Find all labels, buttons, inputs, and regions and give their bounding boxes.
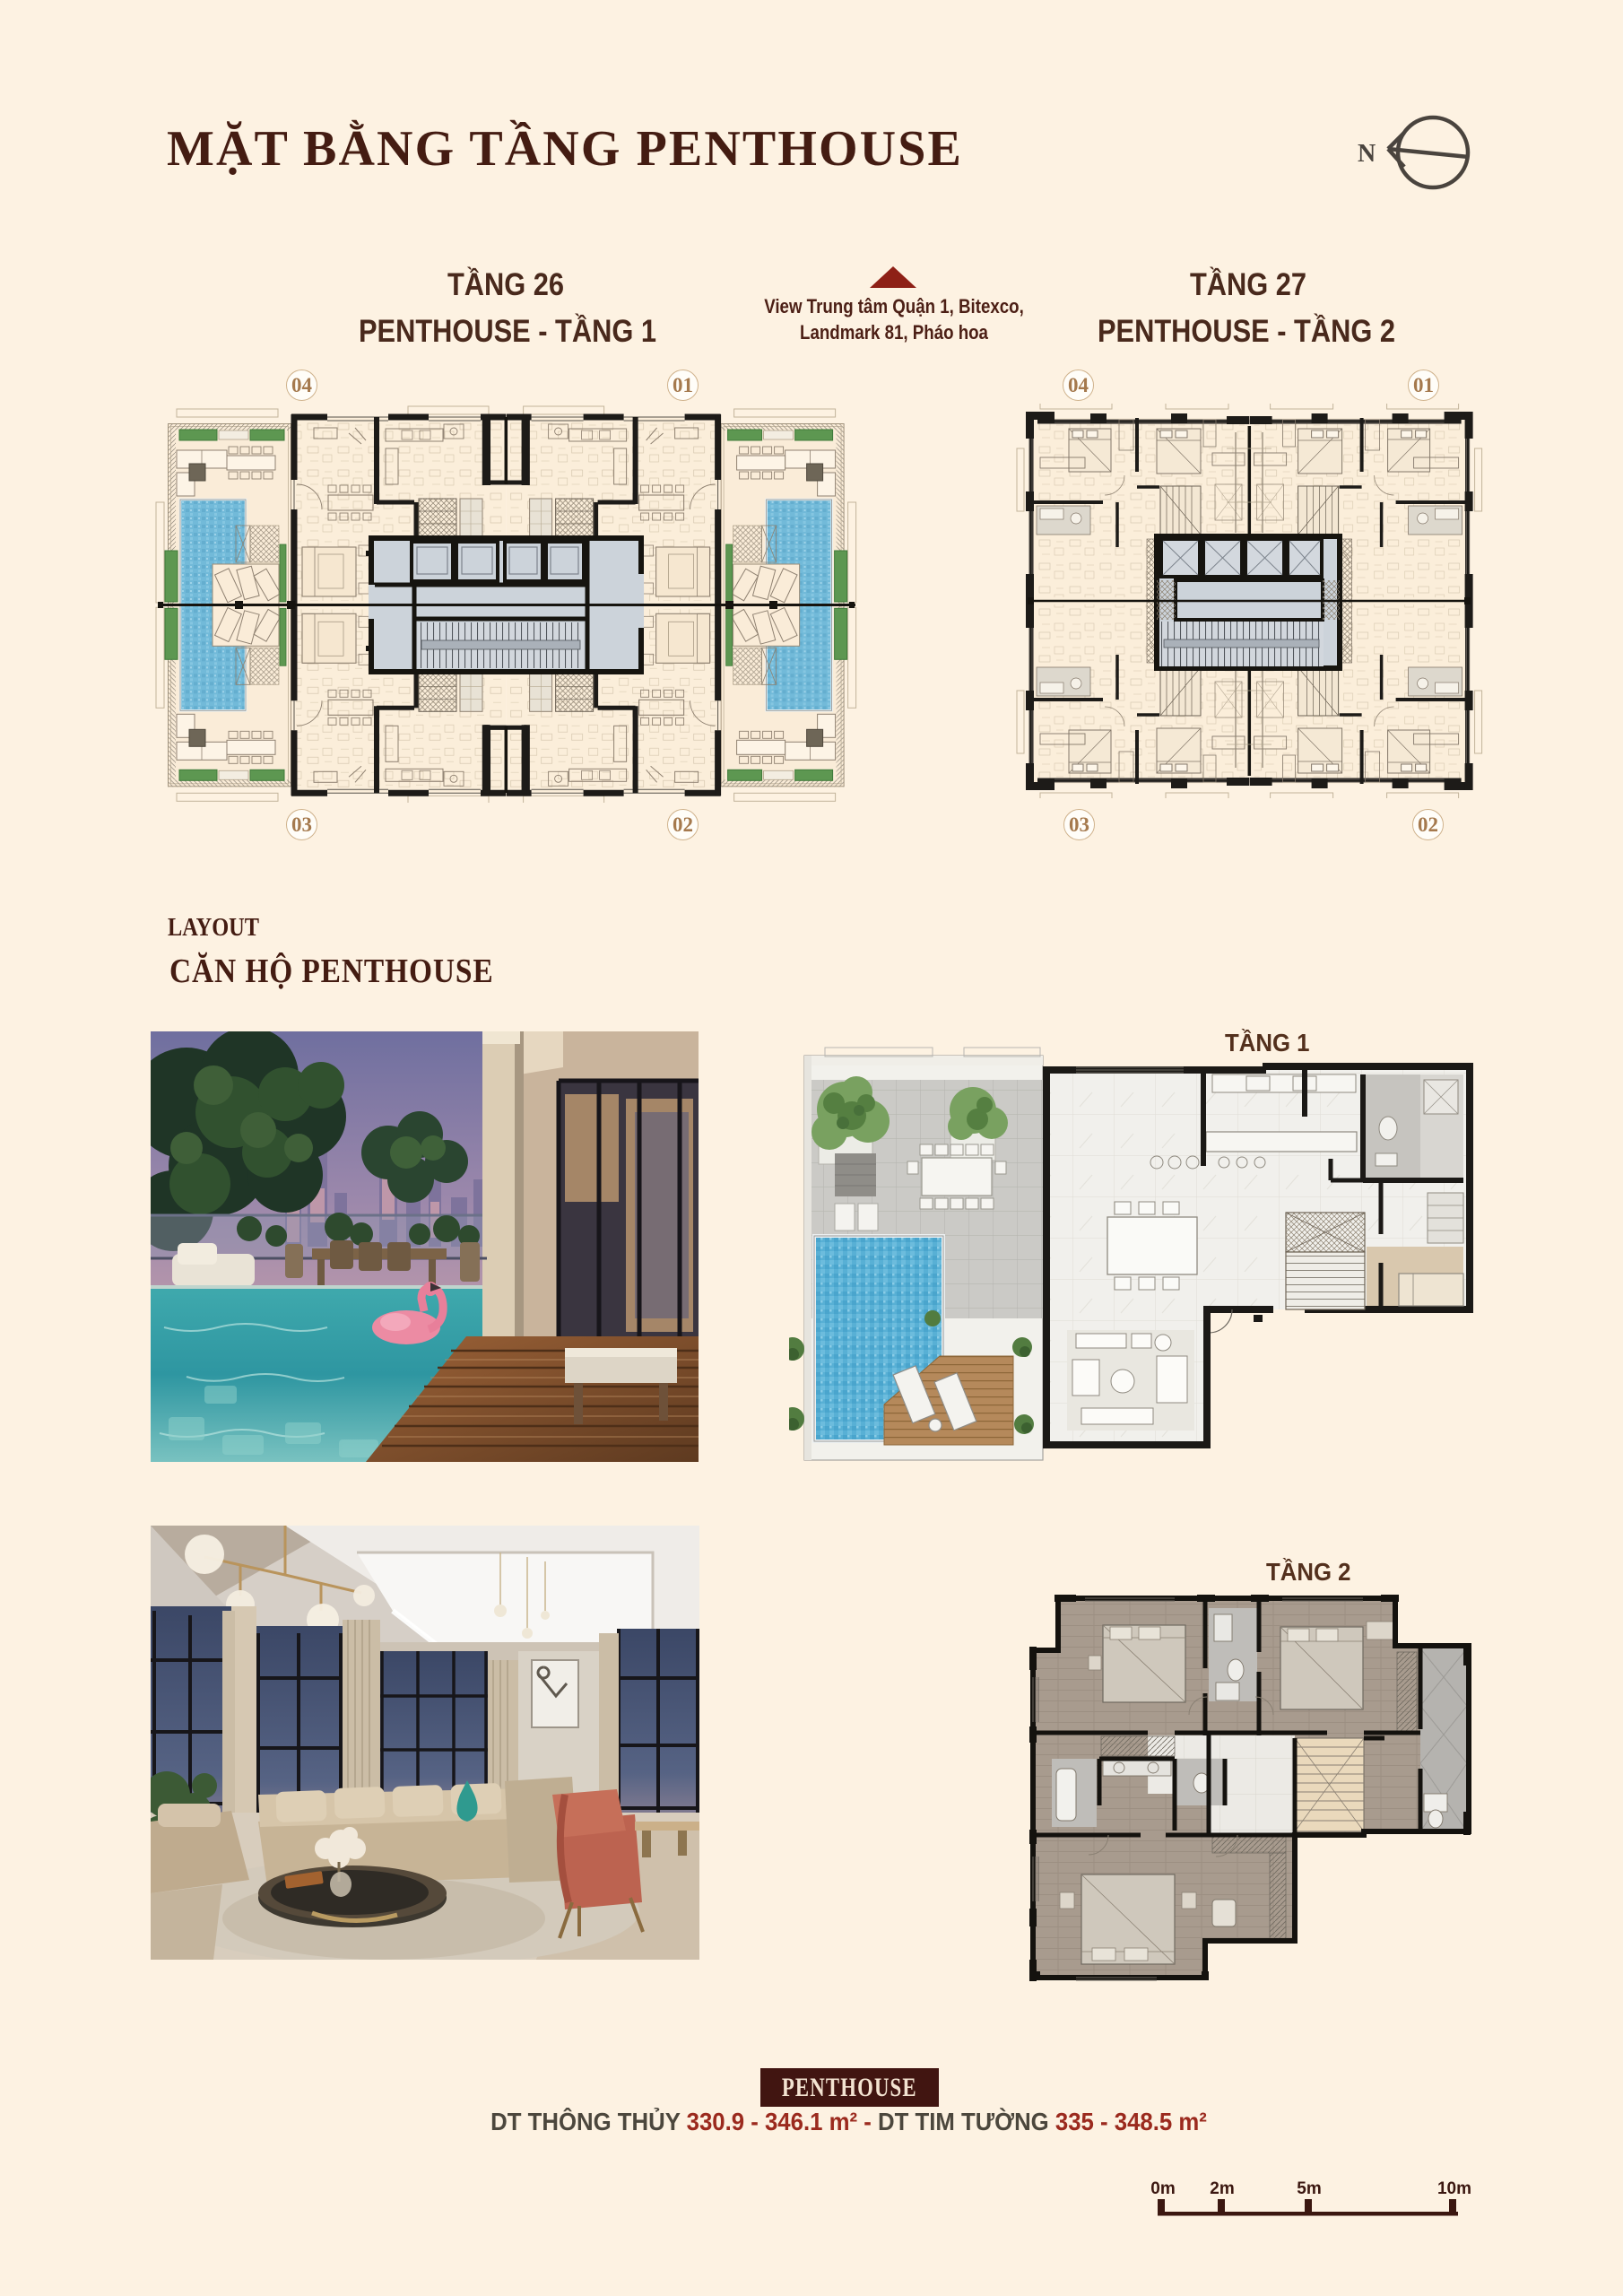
svg-text:2m: 2m [1210,2179,1234,2198]
svg-text:5m: 5m [1297,2179,1321,2198]
svg-text:10m: 10m [1437,2179,1471,2198]
svg-text:N: N [1358,140,1376,168]
svg-text:0m: 0m [1150,2179,1175,2198]
